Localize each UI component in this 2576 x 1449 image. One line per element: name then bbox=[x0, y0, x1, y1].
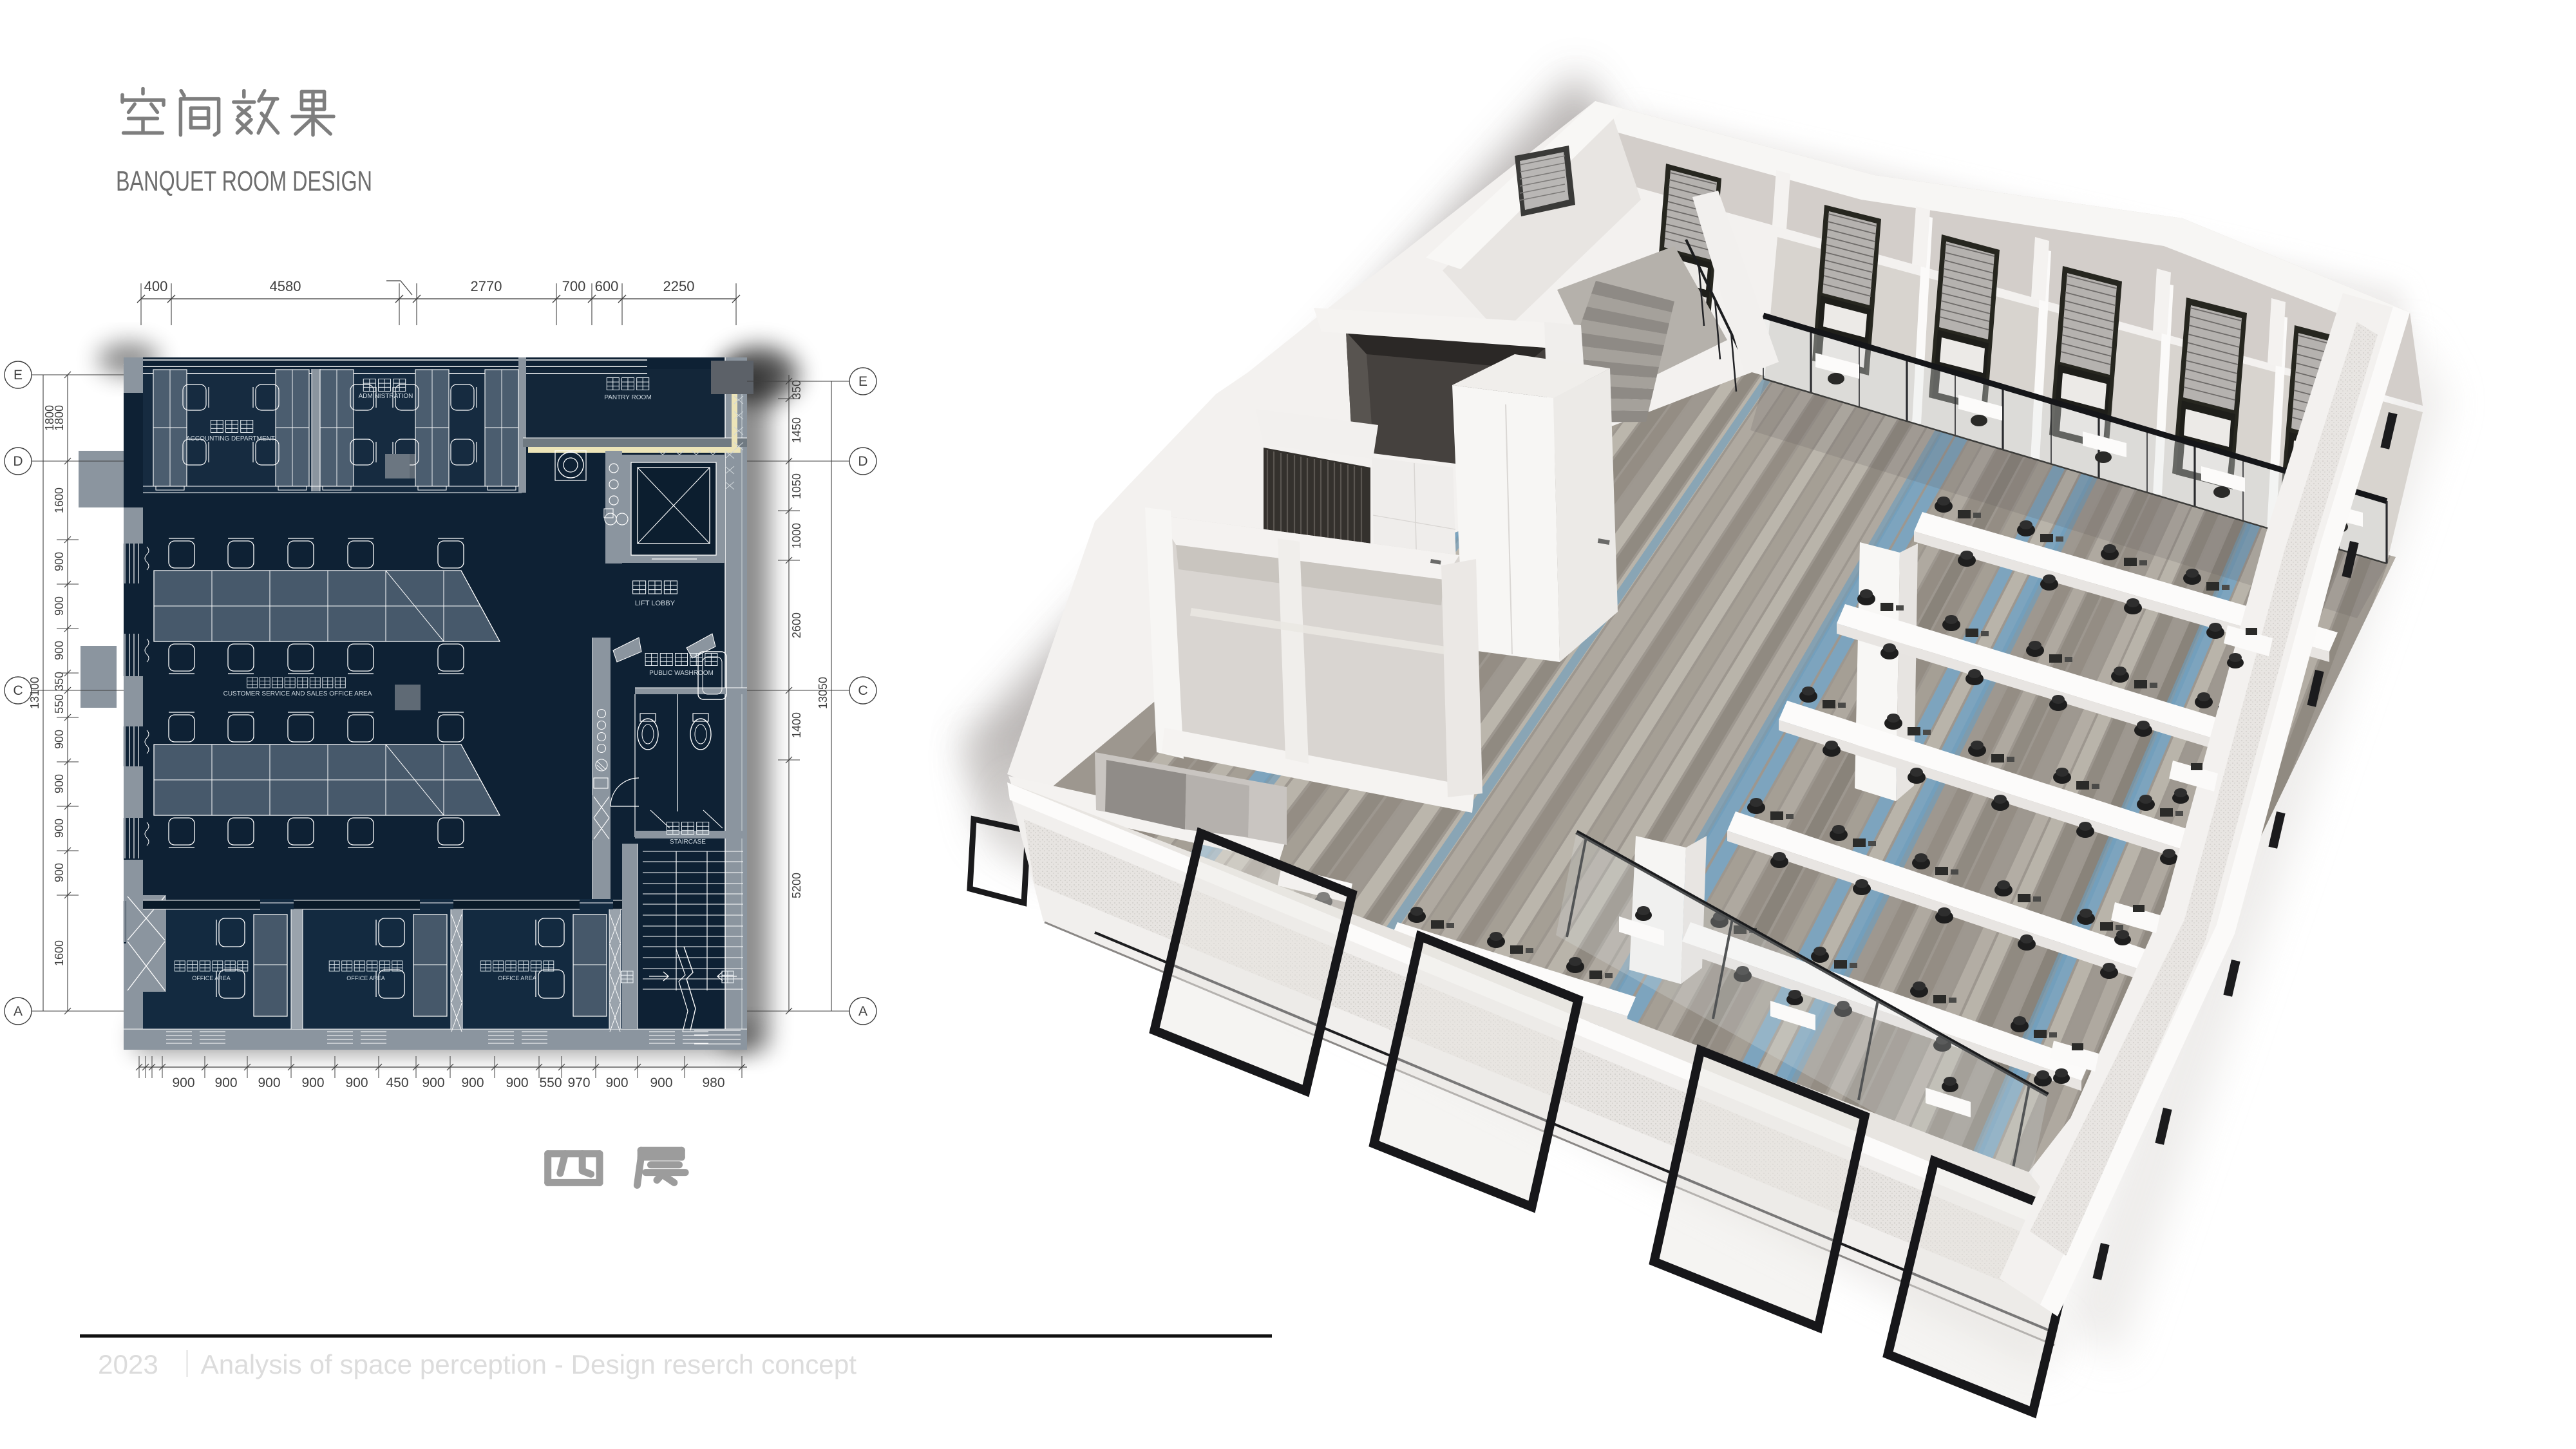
svg-text:13100: 13100 bbox=[28, 677, 41, 709]
svg-text:OFFICE AREA: OFFICE AREA bbox=[192, 975, 231, 981]
svg-text:450: 450 bbox=[386, 1075, 408, 1090]
svg-text:980: 980 bbox=[702, 1075, 724, 1090]
svg-text:1400: 1400 bbox=[790, 712, 803, 738]
svg-text:900: 900 bbox=[53, 730, 66, 749]
svg-text:1600: 1600 bbox=[53, 940, 66, 966]
svg-text:PANTRY ROOM: PANTRY ROOM bbox=[604, 394, 651, 401]
svg-text:ACCOUNTING DEPARTMENT: ACCOUNTING DEPARTMENT bbox=[186, 435, 275, 442]
svg-text:900: 900 bbox=[53, 819, 66, 838]
svg-text:900: 900 bbox=[345, 1075, 368, 1090]
svg-text:4580: 4580 bbox=[270, 278, 301, 294]
svg-text:OFFICE AREA: OFFICE AREA bbox=[498, 975, 536, 981]
svg-text:900: 900 bbox=[605, 1075, 628, 1090]
svg-text:1450: 1450 bbox=[790, 417, 803, 443]
svg-text:600: 600 bbox=[595, 278, 619, 294]
svg-text:C: C bbox=[858, 683, 867, 698]
svg-text:900: 900 bbox=[301, 1075, 324, 1090]
svg-text:350: 350 bbox=[53, 672, 66, 691]
svg-text:1050: 1050 bbox=[790, 473, 803, 499]
svg-text:BANQUET ROOM DESIGN: BANQUET ROOM DESIGN bbox=[116, 166, 372, 197]
svg-text:550: 550 bbox=[53, 694, 66, 714]
svg-text:E: E bbox=[14, 368, 23, 383]
svg-text:2250: 2250 bbox=[663, 278, 695, 294]
svg-text:ADMINISTRATION: ADMINISTRATION bbox=[359, 393, 413, 400]
svg-text:LIFT LOBBY: LIFT LOBBY bbox=[635, 600, 676, 607]
svg-text:900: 900 bbox=[53, 863, 66, 882]
svg-text:900: 900 bbox=[258, 1075, 280, 1090]
svg-text:550: 550 bbox=[539, 1075, 562, 1090]
svg-text:700: 700 bbox=[562, 278, 586, 294]
svg-text:5200: 5200 bbox=[790, 873, 803, 898]
svg-text:STAIRCASE: STAIRCASE bbox=[670, 838, 706, 846]
svg-text:2600: 2600 bbox=[790, 612, 803, 638]
svg-text:900: 900 bbox=[53, 774, 66, 793]
svg-text:900: 900 bbox=[461, 1075, 484, 1090]
svg-text:D: D bbox=[13, 454, 23, 469]
svg-text:350: 350 bbox=[790, 380, 803, 399]
svg-text:900: 900 bbox=[172, 1075, 194, 1090]
svg-text:1800: 1800 bbox=[43, 405, 56, 431]
svg-text:2770: 2770 bbox=[471, 278, 502, 294]
svg-text:900: 900 bbox=[53, 596, 66, 616]
svg-text:OFFICE AREA: OFFICE AREA bbox=[346, 975, 385, 981]
svg-text:D: D bbox=[858, 454, 867, 469]
svg-text:CUSTOMER SERVICE AND SALES OFF: CUSTOMER SERVICE AND SALES OFFICE AREA bbox=[223, 690, 372, 697]
svg-text:C: C bbox=[13, 683, 23, 698]
svg-text:PUBLIC WASHROOM: PUBLIC WASHROOM bbox=[649, 670, 714, 677]
svg-text:A: A bbox=[14, 1004, 23, 1019]
svg-text:900: 900 bbox=[422, 1075, 444, 1090]
svg-text:A: A bbox=[858, 1004, 867, 1019]
svg-text:1000: 1000 bbox=[790, 523, 803, 549]
svg-text:900: 900 bbox=[214, 1075, 237, 1090]
svg-text:900: 900 bbox=[53, 552, 66, 571]
svg-text:1600: 1600 bbox=[53, 488, 66, 513]
svg-text:13050: 13050 bbox=[817, 677, 829, 709]
svg-text:970: 970 bbox=[567, 1075, 590, 1090]
svg-text:2023 ｜Analysis of space perce: 2023 ｜Analysis of space perception - Des… bbox=[98, 1349, 857, 1379]
svg-text:900: 900 bbox=[506, 1075, 528, 1090]
svg-text:E: E bbox=[858, 374, 867, 389]
svg-text:900: 900 bbox=[53, 641, 66, 660]
svg-text:900: 900 bbox=[650, 1075, 672, 1090]
svg-text:400: 400 bbox=[144, 278, 168, 294]
